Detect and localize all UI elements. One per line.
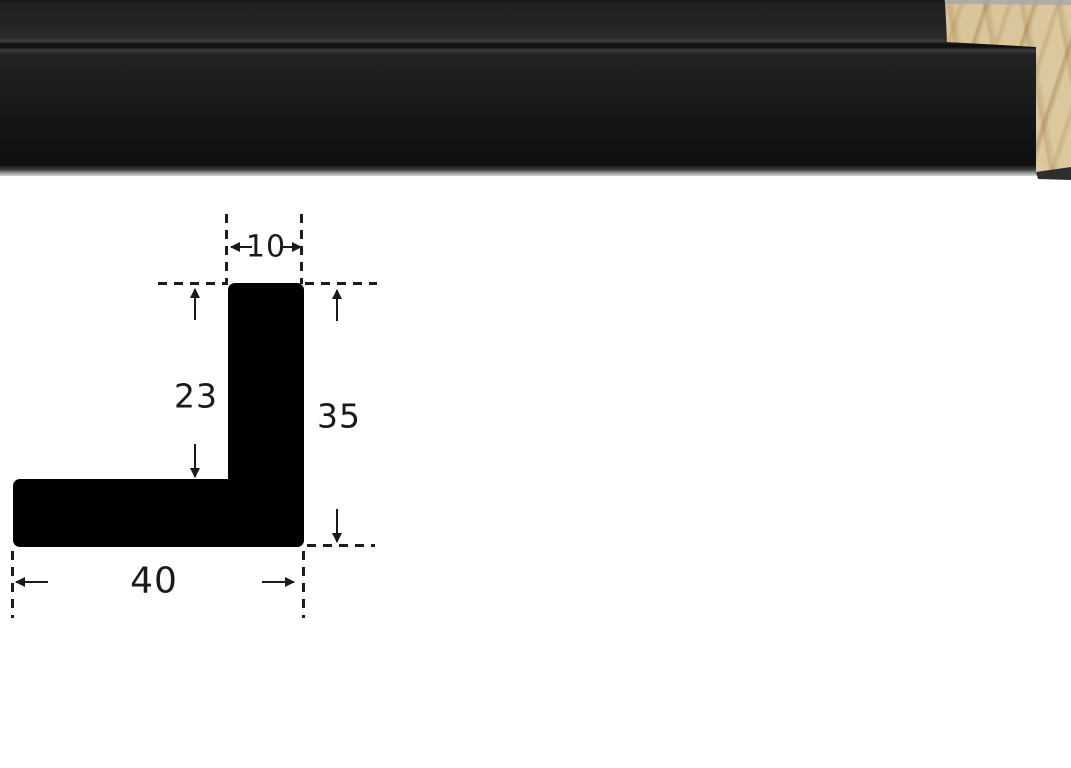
profile-horizontal-bar xyxy=(13,479,304,547)
dim-upper-height-arrow-down-icon xyxy=(194,444,196,477)
dim-total-height-arrow-up-icon xyxy=(336,290,338,321)
extension-line-bottom-left-vertical xyxy=(11,551,14,618)
extension-line-top-left-vertical xyxy=(225,214,228,284)
profile-diagram: 10 23 35 40 xyxy=(0,0,420,640)
extension-line-top-right-horizontal xyxy=(305,282,377,285)
extension-line-bottom-right-horizontal xyxy=(307,544,375,547)
dim-upper-height-label: 23 xyxy=(174,377,218,416)
dim-base-width-label: 40 xyxy=(130,561,178,602)
dim-base-width-arrow-left-icon xyxy=(16,581,48,583)
extension-line-top-left-horizontal xyxy=(158,282,228,285)
extension-line-bottom-right-vertical xyxy=(302,551,305,618)
dim-total-height-label: 35 xyxy=(317,397,361,436)
dim-base-width-arrow-right-icon xyxy=(262,581,294,583)
page-background: 10 23 35 40 xyxy=(0,0,1071,768)
dim-top-width-label: 10 xyxy=(246,230,286,265)
dim-total-height-arrow-down-icon xyxy=(336,509,338,542)
dim-upper-height-arrow-up-icon xyxy=(194,289,196,320)
